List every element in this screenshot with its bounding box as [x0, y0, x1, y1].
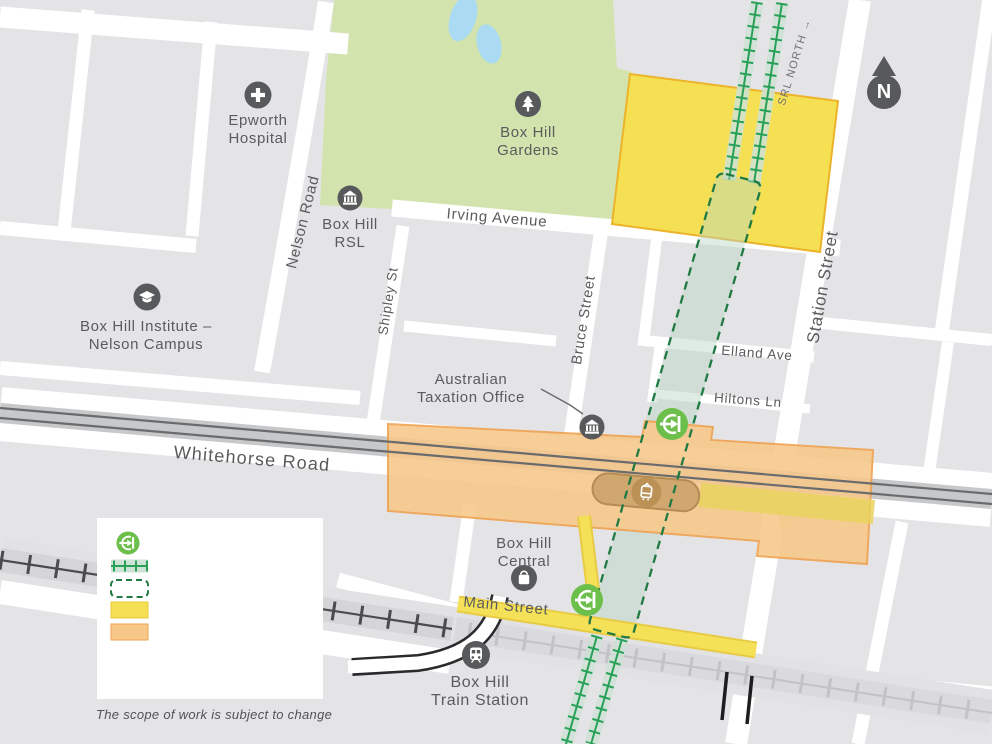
box-hill-institute-label: Box Hill Institute –Nelson Campus — [80, 318, 212, 354]
legend-icons — [97, 518, 323, 699]
legend: SRL station entrance SRL rail tunnel ali… — [97, 518, 323, 699]
box-hill-works-map: Whitehorse Road Irving Avenue Station St… — [0, 0, 992, 744]
utility-strip-whitehorse — [700, 495, 874, 512]
compass-arrow-icon — [872, 56, 896, 76]
disclaimer-text: The scope of work is subject to change — [96, 707, 332, 722]
train-icon — [462, 641, 490, 669]
srl-entrance-icon — [571, 584, 603, 616]
legend-underground-station-icon — [111, 580, 148, 597]
graduation-cap-icon — [134, 284, 161, 311]
tree-icon — [515, 91, 541, 117]
box-hill-central-label: Box HillCentral — [496, 535, 552, 571]
ato-building-icon — [580, 415, 605, 440]
box-hill-gardens-label: Box HillGardens — [497, 124, 559, 160]
box-hill-train-station-label: Box HillTrain Station — [431, 674, 529, 710]
box-hill-gardens-park — [320, 0, 632, 222]
legend-srl-entrance-icon — [116, 531, 139, 554]
box-hill-rsl-label: Box HillRSL — [322, 216, 378, 252]
rsl-building-icon — [338, 186, 363, 211]
ato-label: AustralianTaxation Office — [417, 371, 525, 407]
hospital-cross-icon — [245, 82, 272, 109]
srl-entrance-icon — [656, 408, 688, 440]
compass-north-icon: N — [867, 75, 901, 109]
legend-utility-swatch-icon — [111, 602, 148, 618]
legend-tram-swatch-icon — [111, 624, 148, 640]
epworth-hospital-label: EpworthHospital — [228, 112, 287, 148]
